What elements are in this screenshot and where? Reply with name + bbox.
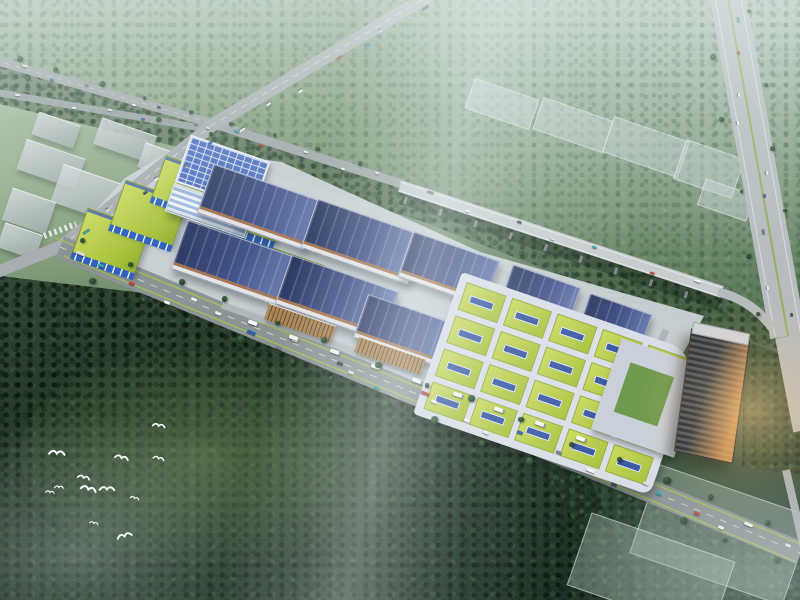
top-haze [0,0,800,600]
aerial-rendering [0,0,800,600]
